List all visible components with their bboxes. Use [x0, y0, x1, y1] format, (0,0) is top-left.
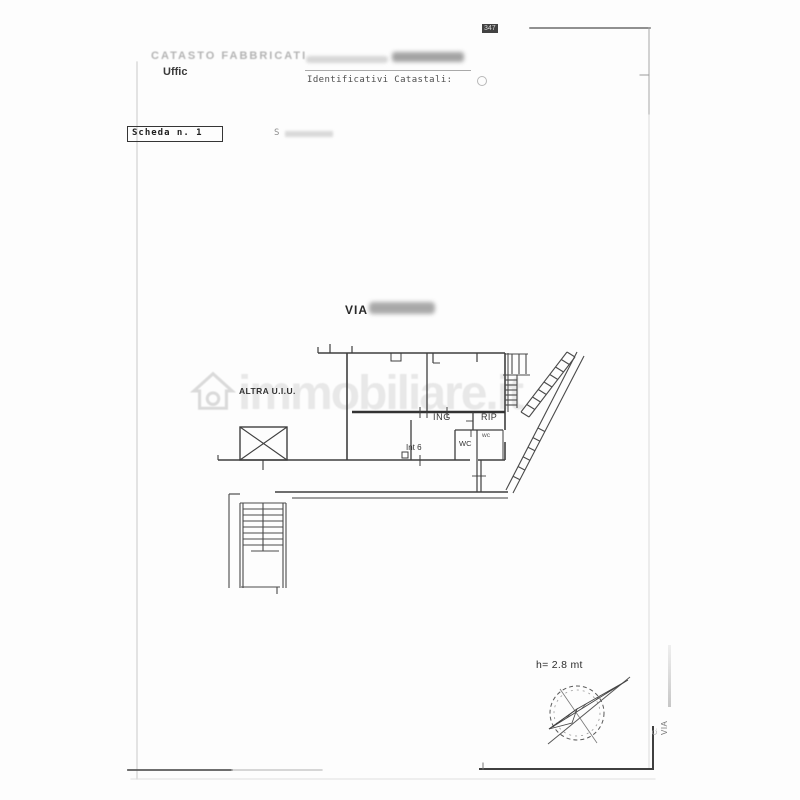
side-street-line1: C. — [651, 691, 660, 735]
street-name-label: VIA — [345, 303, 368, 317]
diagonal-boundary — [506, 352, 584, 493]
floor-plan-drawing — [0, 0, 800, 800]
identifiers-underline — [305, 70, 471, 71]
side-street-label: C. VIA — [651, 691, 673, 735]
room-label-int6: Int 6 — [406, 443, 422, 452]
side-street-line2: VIA — [660, 691, 670, 735]
room-label-rip: RIP — [481, 412, 497, 422]
corridor-lines — [229, 460, 508, 498]
room-label-wc: WC — [459, 439, 472, 448]
redacted-scale-blur — [285, 131, 333, 137]
compass-rose — [548, 677, 630, 744]
redacted-street-blur — [369, 302, 435, 314]
page-number-stamp: 347 — [482, 24, 498, 33]
document-title: CATASTO FABBRICATI — [151, 50, 307, 62]
redacted-text-blur — [392, 52, 464, 62]
room-label-ing: ING — [433, 412, 451, 422]
scheda-label: Scheda n. 1 — [132, 128, 203, 138]
stairs-top-right — [503, 352, 575, 417]
scale-label: S — [274, 128, 279, 138]
redacted-text-blur — [306, 56, 388, 63]
identifier-circle-mark — [477, 76, 487, 86]
room-label-wc-small: wc — [482, 432, 490, 439]
identifiers-label: Identificativi Catastali: — [307, 75, 452, 85]
ceiling-height-note: h= 2.8 mt — [536, 659, 583, 671]
room-label-altra-uiu: ALTRA U.I.U. — [239, 386, 296, 396]
stairwell-bottom — [229, 494, 286, 594]
altra-uiu-annex — [218, 427, 347, 470]
office-label: Uffic — [163, 66, 187, 78]
scanned-cadastral-sheet: immobiliare.it — [0, 0, 800, 800]
